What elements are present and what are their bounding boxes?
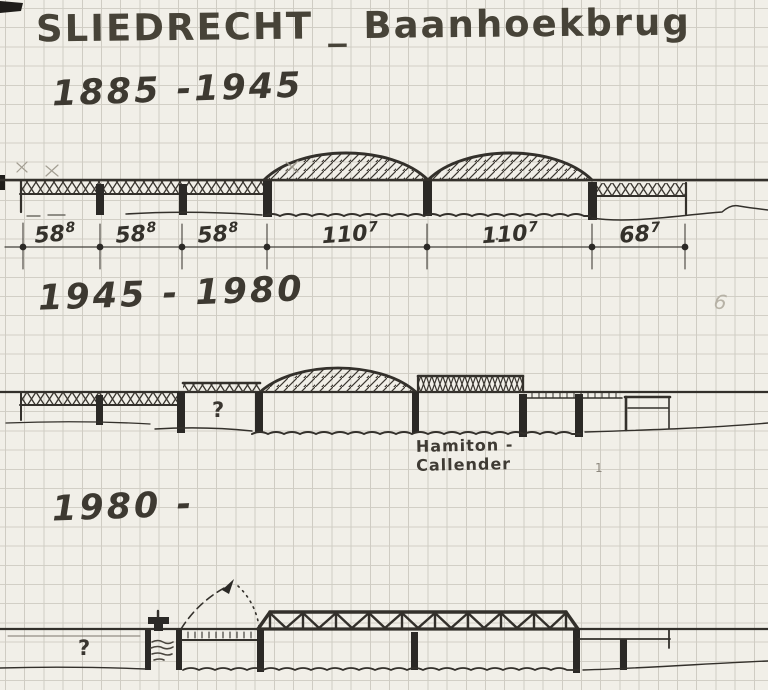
span-maker-note-line2: Callender: [416, 454, 514, 475]
graph-paper-sketch: { "title": "SLIEDRECHT _ Baanhoekbrug", …: [0, 0, 768, 690]
span-dimension-1: 588: [33, 220, 76, 249]
water-line: [252, 432, 580, 434]
sketch-title: SLIEDRECHT _ Baanhoekbrug: [36, 1, 691, 51]
bridge-elevation-1980: [0, 579, 768, 673]
bridge-elevation-1885-1945: [0, 153, 768, 269]
period-label-1980: 1980 -: [51, 485, 194, 530]
faint-pencil-tick: 1: [595, 461, 603, 475]
bridge-elevation-1945-1980: [0, 368, 768, 437]
unknown-span-question-mark-2: ?: [212, 398, 224, 422]
scan-edge-marks: [0, 1, 23, 190]
unknown-span-question-mark-3: ?: [78, 636, 90, 660]
span-dimension-2: 588: [114, 220, 157, 249]
callender-hamilton-span-hatch: [418, 377, 523, 392]
span-dimension-5: 1107: [481, 219, 539, 249]
piers: [257, 629, 627, 673]
span-dimension-3: 588: [196, 220, 239, 249]
bascule-pier: [145, 611, 182, 670]
arch-truss-hatch: [264, 153, 428, 180]
deck-truss-hatch: [20, 181, 268, 194]
opening-motion-dashed-arc: [181, 587, 226, 629]
pencil-construction-marks: [17, 161, 298, 176]
span-maker-note-line1: Hamiton -: [416, 435, 514, 456]
water-line: [183, 668, 579, 670]
water-line: [264, 214, 590, 216]
through-truss-span: [258, 612, 578, 629]
arrow-head: [222, 579, 234, 594]
span-dimension-4: 1107: [321, 219, 379, 249]
opening-motion-dotted-arc: [238, 586, 259, 626]
span-dimension-6: 687: [618, 220, 661, 249]
span-maker-note: Hamiton - Callender: [416, 435, 514, 475]
